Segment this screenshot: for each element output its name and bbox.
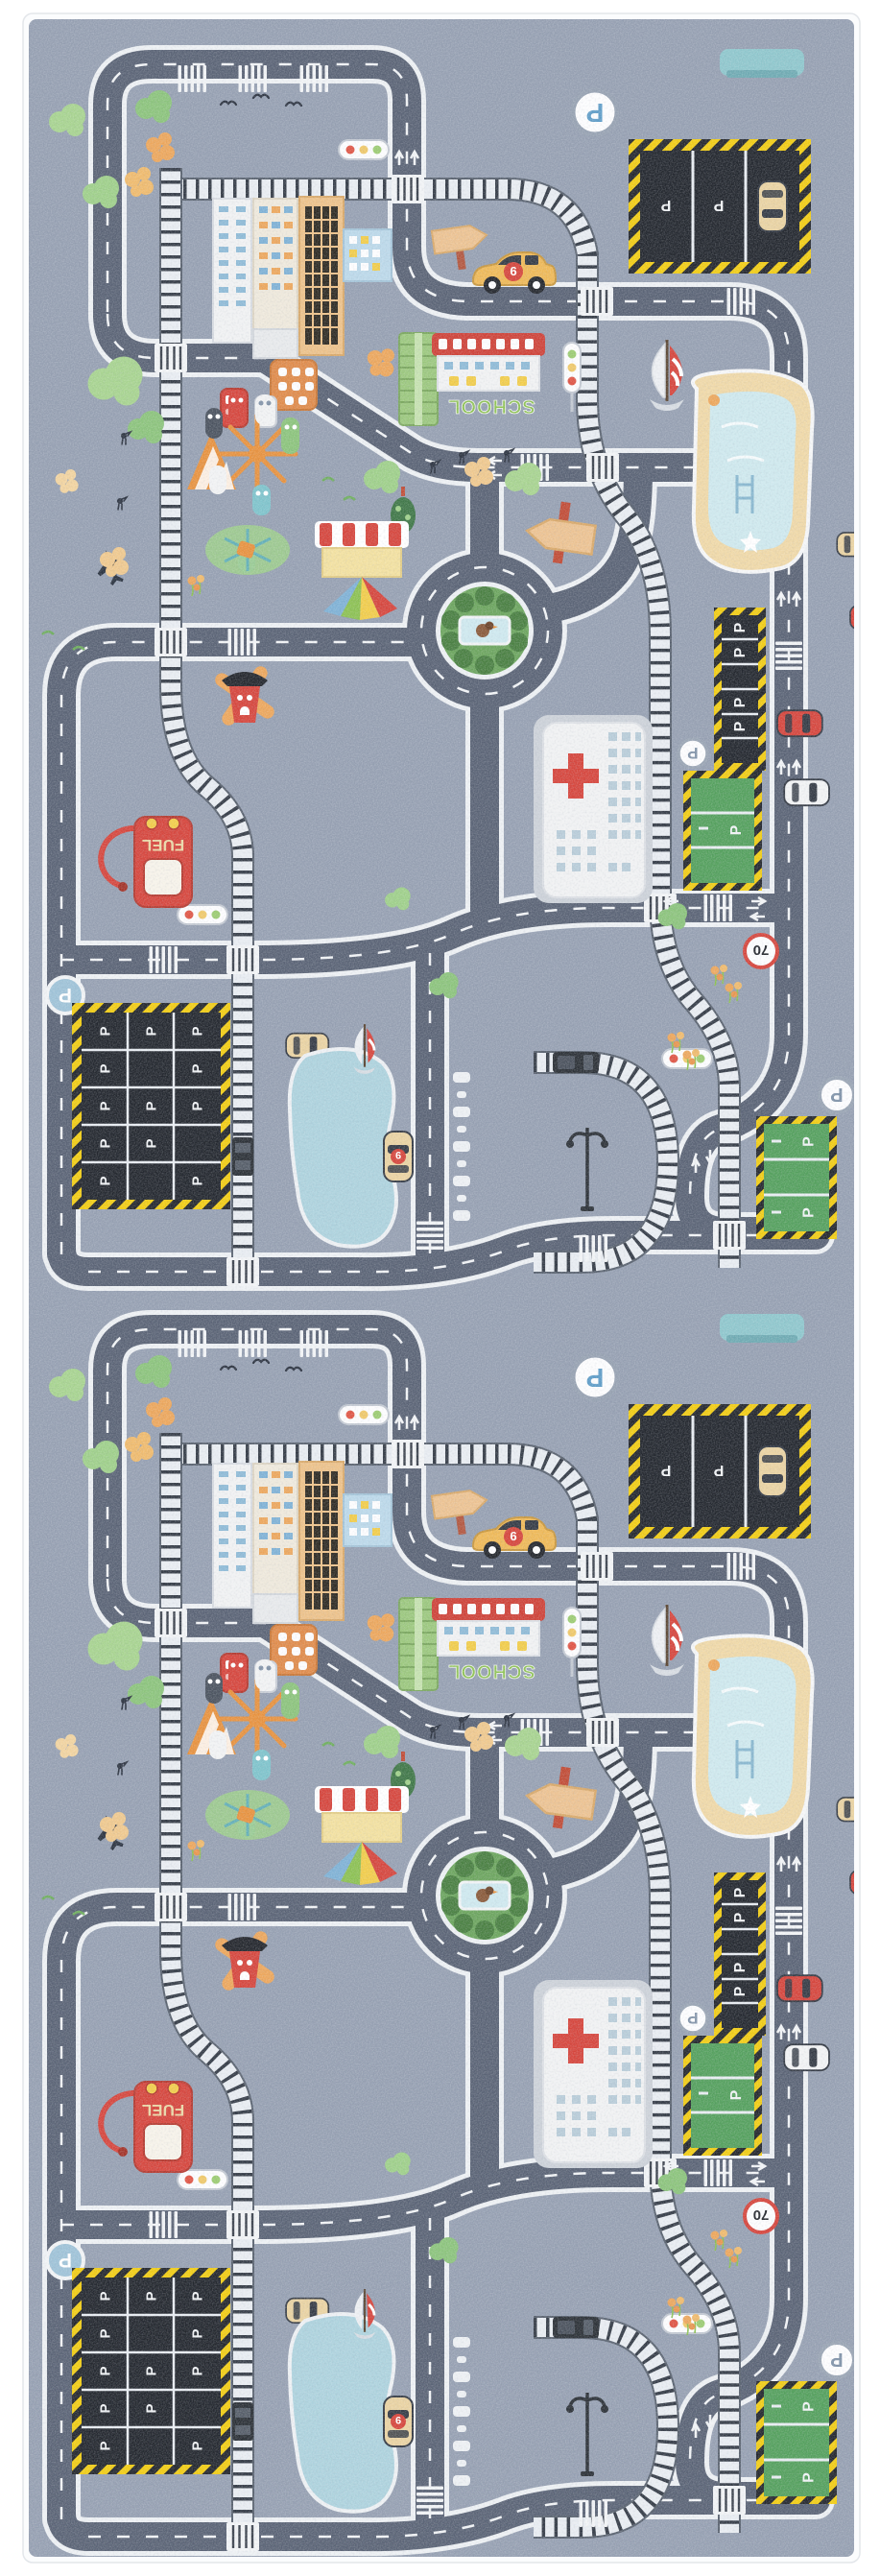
fabric-texture-dark [29,19,854,2557]
play-rug: P P P [0,0,880,2576]
rug-illustration: P P P [0,0,880,2576]
product-photo-scene: P P P [0,0,880,2576]
